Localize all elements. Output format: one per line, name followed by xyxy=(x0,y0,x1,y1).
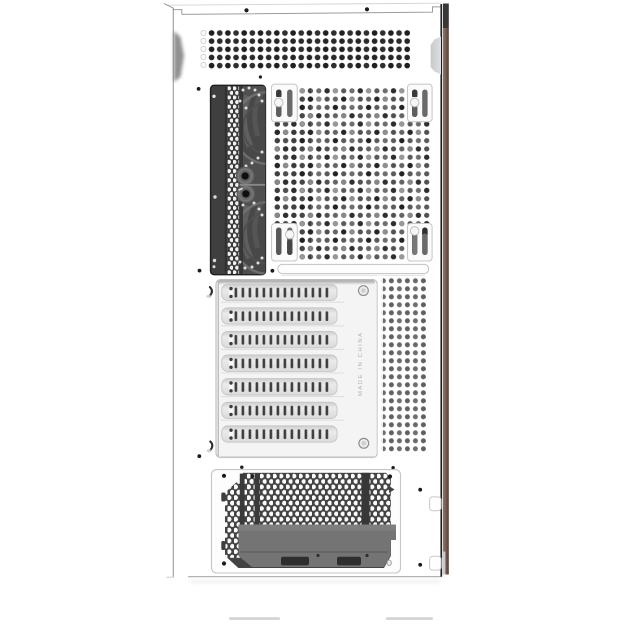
svg-text:MADE IN CHINA: MADE IN CHINA xyxy=(358,331,364,396)
